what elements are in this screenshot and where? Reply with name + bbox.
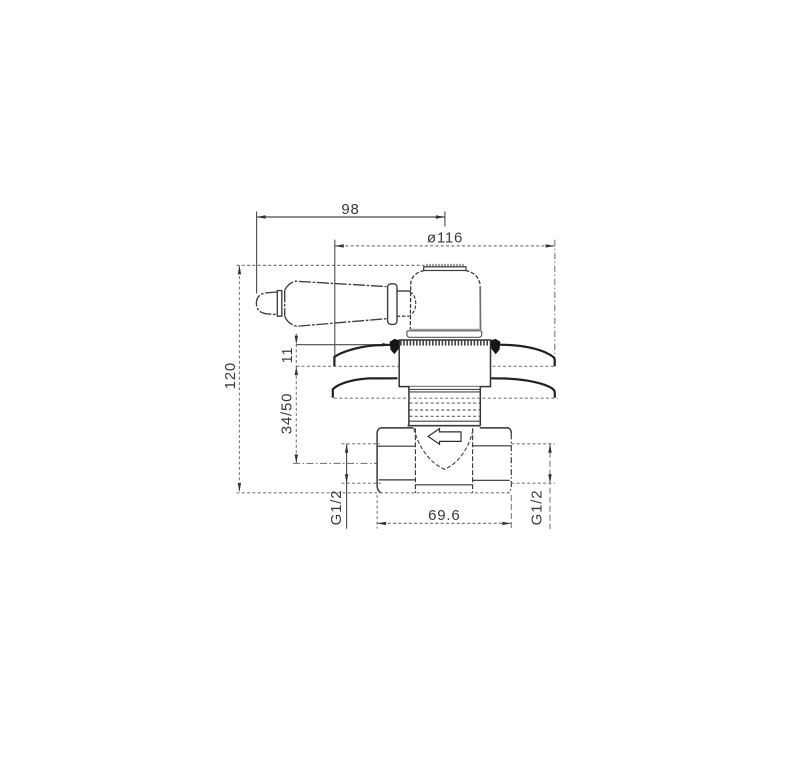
svg-text:69.6: 69.6 [428, 507, 460, 524]
svg-text:120: 120 [222, 362, 239, 389]
svg-text:ø116: ø116 [427, 230, 463, 247]
svg-text:G1/2: G1/2 [328, 490, 345, 526]
svg-text:98: 98 [341, 201, 359, 218]
svg-text:G1/2: G1/2 [529, 490, 546, 526]
svg-text:11: 11 [280, 347, 296, 364]
svg-text:34/50: 34/50 [279, 393, 296, 435]
